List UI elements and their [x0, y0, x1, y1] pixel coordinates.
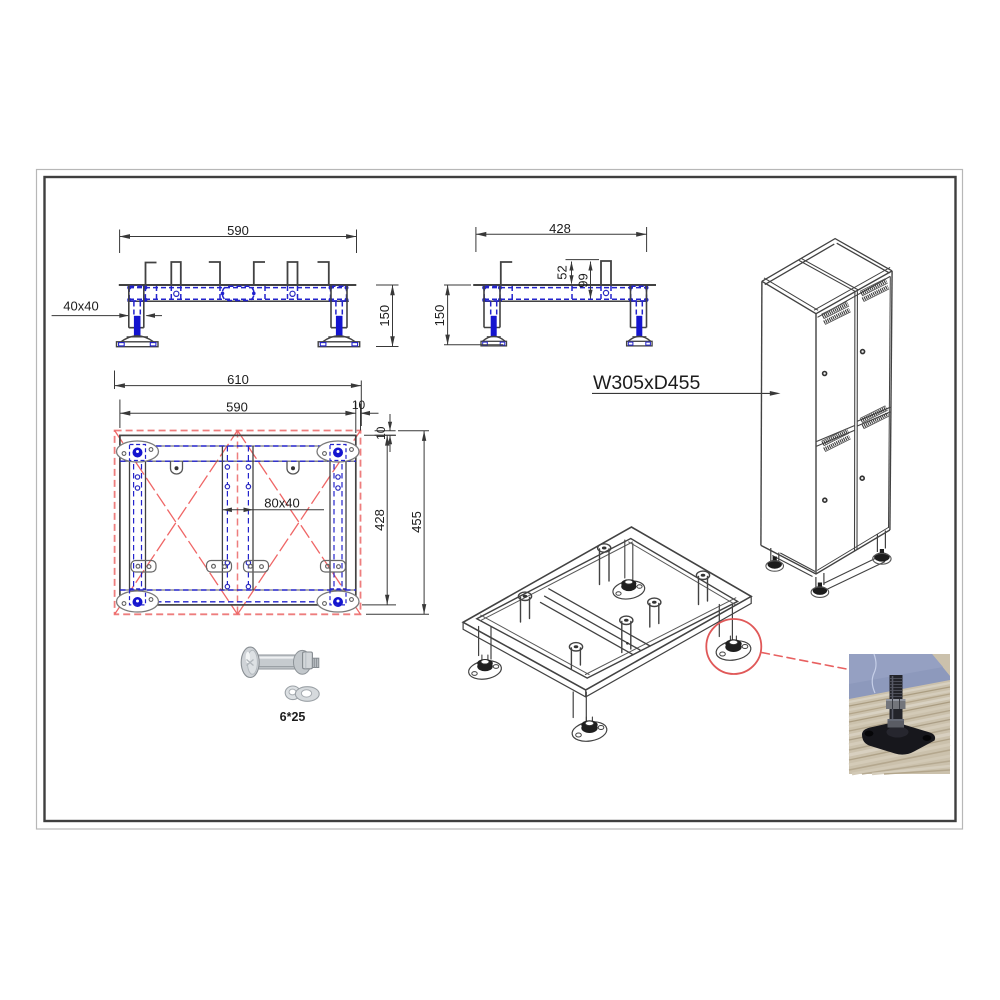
svg-text:150: 150	[377, 305, 392, 327]
svg-text:52: 52	[555, 265, 570, 279]
svg-text:610: 610	[227, 372, 249, 387]
svg-text:455: 455	[409, 511, 424, 533]
svg-text:590: 590	[227, 223, 249, 238]
svg-text:99: 99	[576, 273, 591, 287]
svg-text:6*25: 6*25	[280, 710, 306, 724]
svg-text:W305xD455: W305xD455	[593, 372, 700, 394]
svg-text:428: 428	[549, 221, 571, 236]
svg-text:590: 590	[226, 400, 248, 415]
svg-text:10: 10	[374, 426, 388, 440]
svg-text:40x40: 40x40	[63, 299, 98, 314]
svg-text:150: 150	[432, 305, 447, 327]
svg-text:428: 428	[372, 509, 387, 531]
svg-text:80x40: 80x40	[264, 495, 299, 510]
svg-text:10: 10	[352, 398, 366, 412]
